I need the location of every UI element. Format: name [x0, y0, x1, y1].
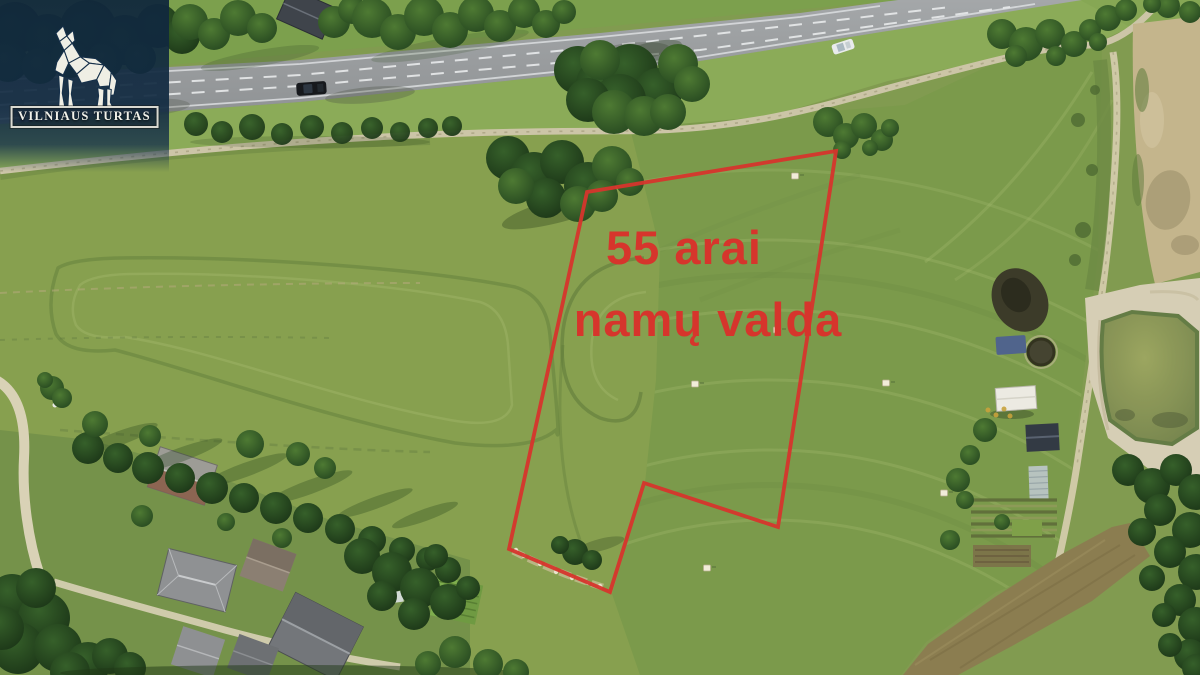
white-building — [995, 386, 1037, 412]
aerial-photo — [0, 0, 1200, 675]
listing-photo-stage: 55 arai namų valda VILNIAUS TURTAS — [0, 0, 1200, 675]
greenhouse — [1028, 466, 1048, 500]
small-pond-round — [1028, 339, 1054, 365]
blue-tarp — [995, 335, 1026, 355]
brand-name: VILNIAUS TURTAS — [10, 106, 159, 128]
car-dark — [296, 81, 327, 96]
brand-watermark: VILNIAUS TURTAS — [0, 0, 169, 172]
dark-roof-house — [1025, 423, 1059, 452]
